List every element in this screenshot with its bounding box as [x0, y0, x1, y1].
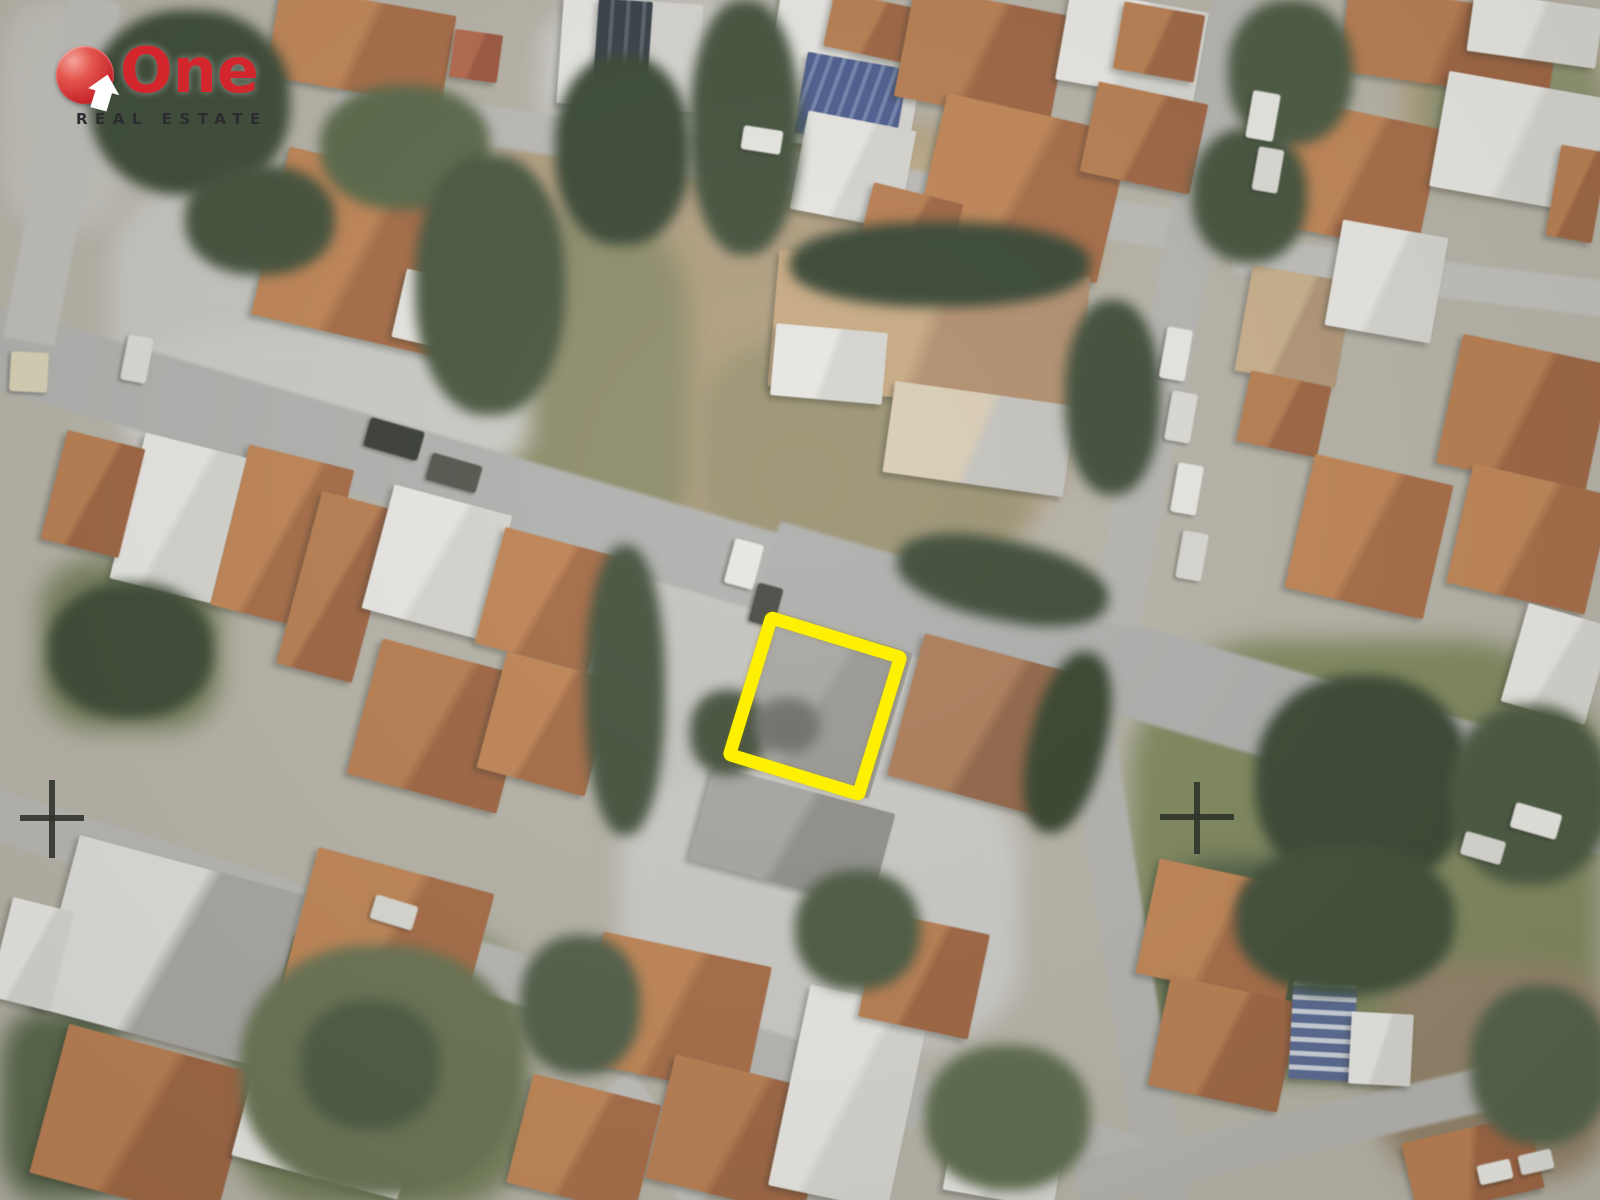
car	[9, 351, 49, 393]
trees	[1470, 985, 1600, 1145]
trees	[415, 155, 565, 415]
car	[1170, 462, 1204, 516]
tree-line	[790, 222, 1090, 307]
white-building	[1348, 1011, 1414, 1086]
white-building	[1325, 220, 1449, 344]
cross-vertical	[49, 780, 55, 858]
trees	[1450, 705, 1600, 885]
brand-tagline: REAL ESTATE	[76, 110, 268, 128]
cross-vertical	[1194, 782, 1200, 854]
brand-name: One	[120, 34, 259, 107]
trees	[925, 1045, 1090, 1190]
trees	[185, 165, 335, 275]
house-arrow-icon	[80, 71, 124, 115]
trees	[1235, 845, 1455, 995]
trees	[300, 1000, 440, 1130]
trees	[795, 870, 920, 990]
satellite-map: One REAL ESTATE	[0, 0, 1600, 1200]
orange-roof-house	[1113, 1, 1206, 82]
trees	[1192, 128, 1307, 263]
white-terrace	[770, 323, 888, 404]
car	[1175, 530, 1209, 582]
orange-roof-house	[1436, 334, 1600, 495]
trees	[48, 583, 213, 718]
trees	[555, 55, 690, 245]
orange-roof-house	[1236, 370, 1331, 457]
hedge	[585, 545, 665, 835]
terracotta-shed	[449, 29, 503, 83]
hedge	[1065, 300, 1160, 495]
orange-roof-house	[1284, 454, 1453, 619]
trees	[520, 935, 640, 1075]
logo-badge	[56, 46, 114, 104]
one-real-estate-logo: One REAL ESTATE	[40, 28, 290, 132]
